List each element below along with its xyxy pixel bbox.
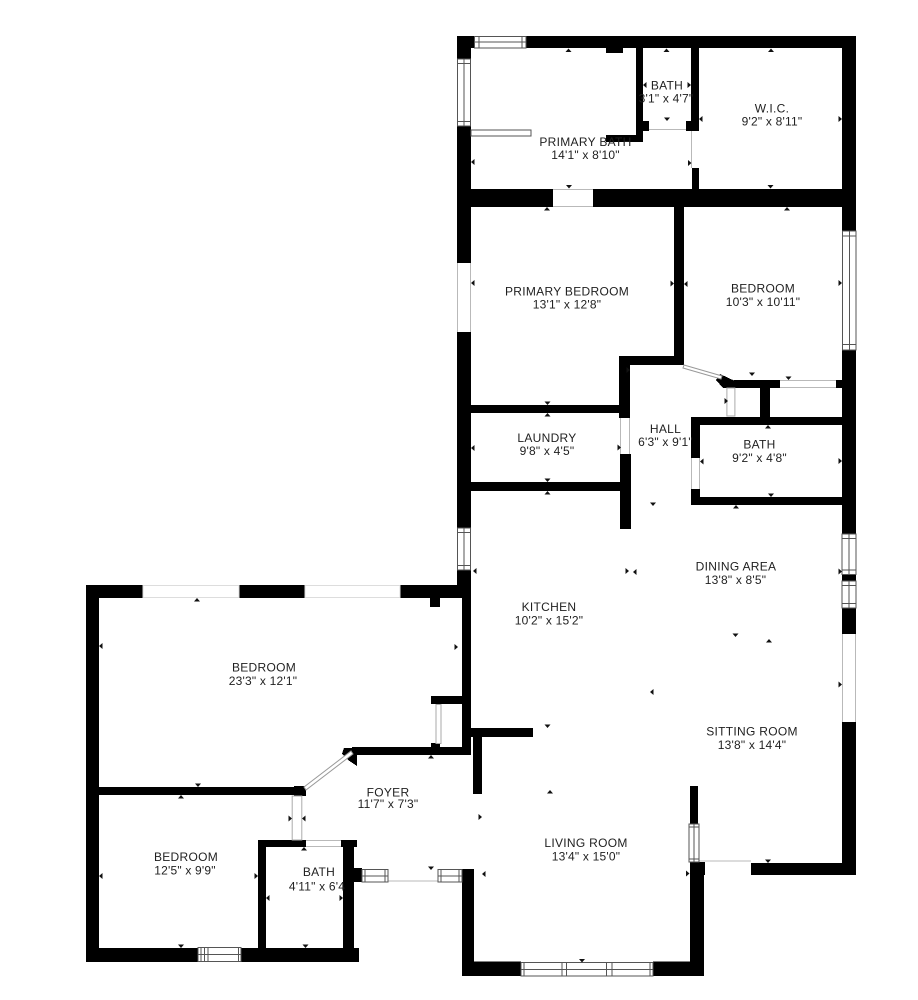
svg-text:BEDROOM: BEDROOM: [154, 850, 218, 864]
svg-text:13'8" x 8'5": 13'8" x 8'5": [705, 573, 767, 587]
svg-text:10'2" x 15'2": 10'2" x 15'2": [515, 613, 583, 627]
svg-text:10'3" x 10'11": 10'3" x 10'11": [726, 295, 800, 309]
svg-text:12'5" x 9'9": 12'5" x 9'9": [154, 864, 216, 878]
svg-text:W.I.C.: W.I.C.: [755, 101, 789, 115]
svg-text:PRIMARY BATH: PRIMARY BATH: [539, 135, 631, 149]
svg-text:9'8" x 4'5": 9'8" x 4'5": [520, 444, 575, 458]
svg-text:9'2" x 8'11": 9'2" x 8'11": [742, 114, 803, 128]
svg-text:4'11" x 6'4: 4'11" x 6'4: [289, 879, 345, 893]
svg-text:11'7" x 7'3": 11'7" x 7'3": [358, 797, 419, 811]
svg-text:LIVING ROOM: LIVING ROOM: [544, 836, 627, 850]
svg-text:BEDROOM: BEDROOM: [731, 281, 795, 295]
svg-text:LAUNDRY: LAUNDRY: [517, 431, 576, 445]
svg-text:KITCHEN: KITCHEN: [522, 600, 577, 614]
svg-text:3'1" x 4'7": 3'1" x 4'7": [639, 92, 694, 106]
svg-text:14'1" x 8'10": 14'1" x 8'10": [551, 148, 619, 162]
svg-text:BATH: BATH: [651, 78, 683, 92]
svg-text:SITTING ROOM: SITTING ROOM: [706, 724, 798, 738]
svg-text:6'3" x 9'1": 6'3" x 9'1": [638, 435, 693, 449]
svg-text:PRIMARY BEDROOM: PRIMARY BEDROOM: [505, 284, 629, 298]
svg-text:13'8" x 14'4": 13'8" x 14'4": [718, 738, 786, 752]
svg-text:BATH: BATH: [743, 437, 775, 451]
svg-text:13'4" x 15'0": 13'4" x 15'0": [552, 850, 620, 864]
svg-text:BEDROOM: BEDROOM: [232, 660, 296, 674]
svg-text:23'3" x 12'1": 23'3" x 12'1": [229, 674, 297, 688]
svg-text:BATH: BATH: [303, 865, 335, 879]
svg-text:9'2" x 4'8": 9'2" x 4'8": [732, 451, 787, 465]
svg-text:DINING AREA: DINING AREA: [696, 560, 777, 574]
svg-text:HALL: HALL: [650, 422, 681, 436]
svg-text:13'1" x 12'8": 13'1" x 12'8": [533, 297, 601, 311]
